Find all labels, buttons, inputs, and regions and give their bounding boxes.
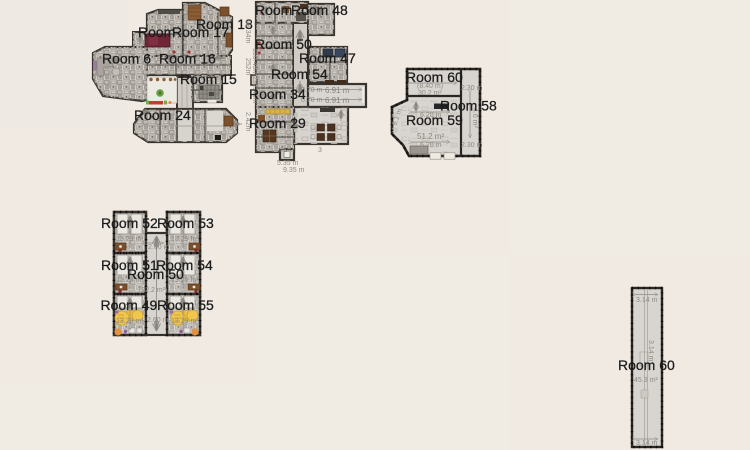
svg-text:Room 60: Room 60 (618, 357, 675, 373)
svg-text:2.60 m: 2.60 m (147, 317, 169, 324)
svg-text:Room 52: Room 52 (101, 215, 158, 231)
svg-text:Room 53: Room 53 (157, 215, 214, 231)
svg-text:Room 29: Room 29 (249, 115, 306, 131)
svg-text:6.91 m: 6.91 m (325, 86, 350, 95)
svg-text:13.29 m²: 13.29 m² (171, 236, 199, 243)
svg-text:3: 3 (318, 147, 322, 154)
svg-text:13.29 m²: 13.29 m² (171, 318, 199, 325)
svg-text:150.49m: 150.49m (251, 48, 258, 75)
svg-text:Room 60: Room 60 (406, 69, 463, 85)
svg-text:58.34m: 58.34m (244, 20, 251, 44)
svg-text:Room 50: Room 50 (127, 266, 184, 282)
svg-text:Room: Room (255, 2, 292, 18)
svg-text:6.20 m: 6.20 m (420, 142, 442, 149)
svg-text:51.2 m²: 51.2 m² (417, 132, 444, 141)
svg-text:Room 49: Room 49 (101, 297, 158, 313)
svg-text:Room 16: Room 16 (159, 51, 216, 67)
svg-text:5.35 m: 5.35 m (277, 160, 299, 167)
svg-text:13.29 m²: 13.29 m² (116, 236, 144, 243)
svg-text:13.29 m²: 13.29 m² (116, 318, 144, 325)
svg-text:Room 55: Room 55 (157, 297, 214, 313)
svg-text:Room 54: Room 54 (271, 66, 328, 82)
svg-text:30.2 m²: 30.2 m² (418, 90, 442, 97)
svg-text:252m: 252m (244, 58, 251, 76)
svg-text:Room 47: Room 47 (299, 50, 356, 66)
svg-text:2.60 m: 2.60 m (148, 244, 170, 251)
svg-text:2.30 m: 2.30 m (461, 85, 483, 92)
svg-text:6.91 m: 6.91 m (325, 96, 350, 105)
svg-text:(32.2 m²): (32.2 m²) (139, 287, 167, 294)
svg-text:Room 24: Room 24 (134, 107, 191, 123)
svg-text:Room 34: Room 34 (249, 86, 306, 102)
svg-text:Room 6: Room 6 (102, 51, 151, 67)
svg-text:3.14 m: 3.14 m (636, 440, 658, 447)
svg-text:Room 59: Room 59 (406, 112, 463, 128)
svg-text:Room 15: Room 15 (180, 71, 237, 87)
svg-text:3.14 m: 3.14 m (636, 297, 658, 304)
svg-text:9.35 m: 9.35 m (283, 167, 305, 174)
svg-text:Room: Room (138, 24, 175, 40)
svg-text:45.3 m²: 45.3 m² (634, 377, 658, 384)
svg-text:2.30 m: 2.30 m (461, 142, 483, 149)
svg-text:Room 48: Room 48 (291, 2, 348, 18)
